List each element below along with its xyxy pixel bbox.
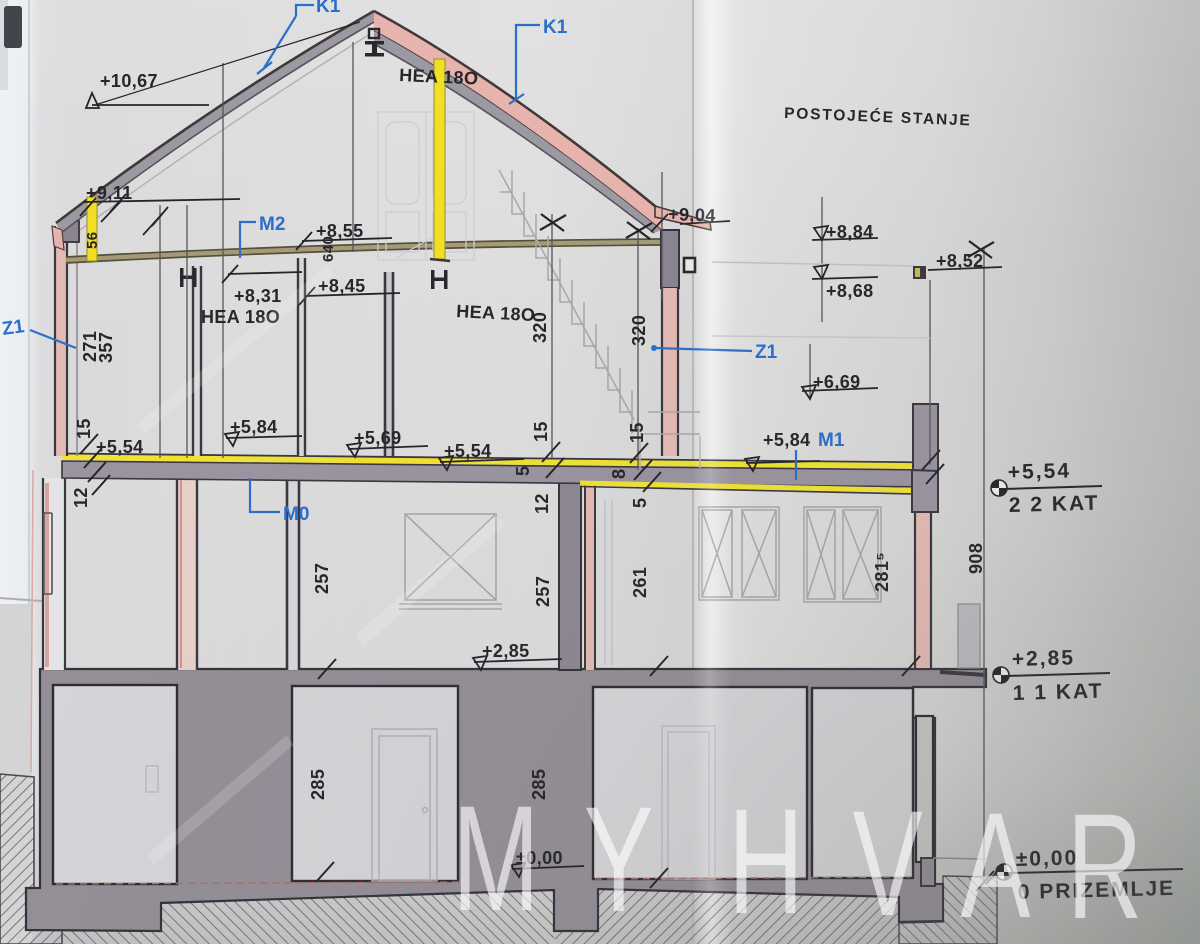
svg-text:Y: Y bbox=[584, 777, 654, 944]
svg-text:V: V bbox=[853, 781, 923, 944]
svg-text:A: A bbox=[960, 783, 1031, 944]
svg-text:H: H bbox=[728, 779, 804, 944]
svg-text:M: M bbox=[452, 776, 539, 943]
svg-text:R: R bbox=[1067, 784, 1143, 944]
